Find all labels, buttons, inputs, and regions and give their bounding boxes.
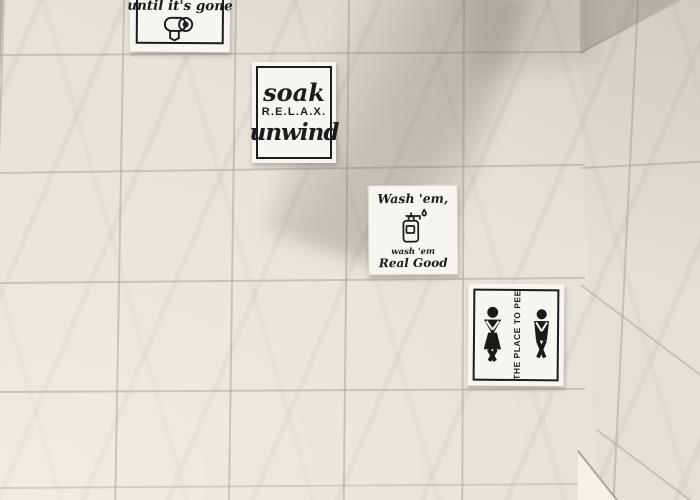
man-crossed-legs-icon — [527, 306, 555, 364]
place-to-pee-sign: THE PLACE TO PEE — [468, 284, 565, 387]
toilet-paper-sign: until it's gone — [130, 0, 231, 52]
wash-footer-text-2: Real Good — [379, 257, 448, 270]
soak-relax-unwind-sign: soak R.E.L.A.X. unwind — [252, 62, 336, 163]
toilet-paper-roll-icon — [162, 15, 198, 42]
top-right-gradient — [0, 0, 700, 500]
soak-text: soak — [263, 80, 325, 105]
toilet-paper-sign-text: until it's gone — [127, 0, 233, 13]
unwind-text: unwind — [250, 120, 339, 145]
wash-em-sign: Wash 'em, wash 'em Real Good — [368, 185, 459, 276]
soap-dispenser-icon — [393, 206, 433, 246]
place-to-pee-text: THE PLACE TO PEE — [512, 290, 523, 380]
woman-crossed-legs-icon — [477, 305, 507, 365]
vertical-text-wrap: THE PLACE TO PEE — [509, 297, 525, 373]
relax-text: R.E.L.A.X. — [262, 105, 327, 120]
bathroom-tile-wall-photo: until it's gone soak R.E.L.A.X. unwind W… — [0, 0, 700, 500]
wash-heading-text: Wash 'em, — [377, 192, 448, 206]
